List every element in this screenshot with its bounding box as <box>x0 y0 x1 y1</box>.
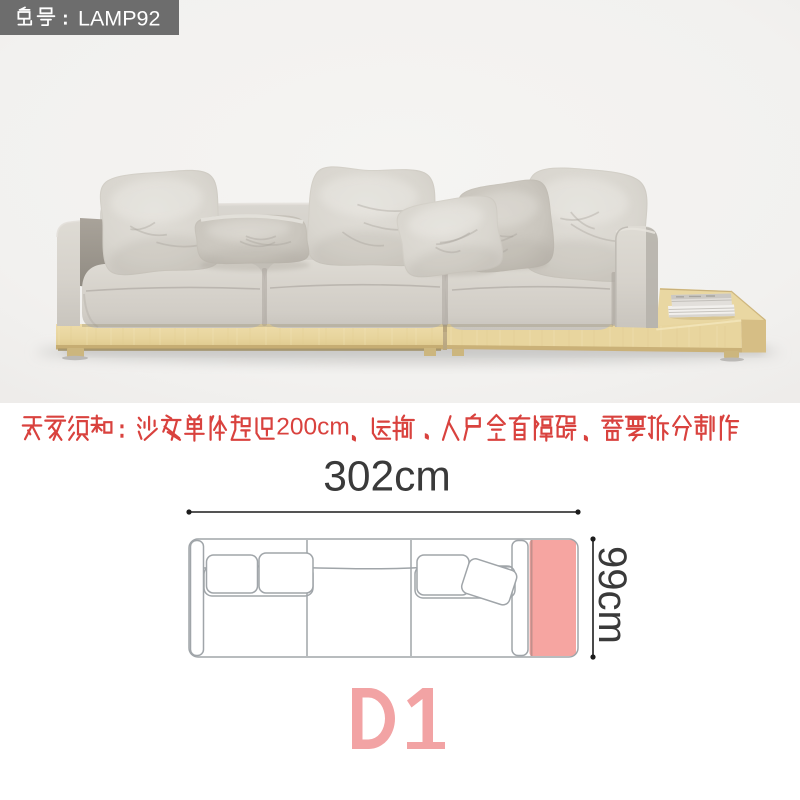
svg-text:LAMP92: LAMP92 <box>78 7 160 31</box>
svg-text:99cm: 99cm <box>590 546 634 644</box>
svg-text:302cm: 302cm <box>323 454 451 501</box>
svg-text:200cm: 200cm <box>276 414 350 441</box>
